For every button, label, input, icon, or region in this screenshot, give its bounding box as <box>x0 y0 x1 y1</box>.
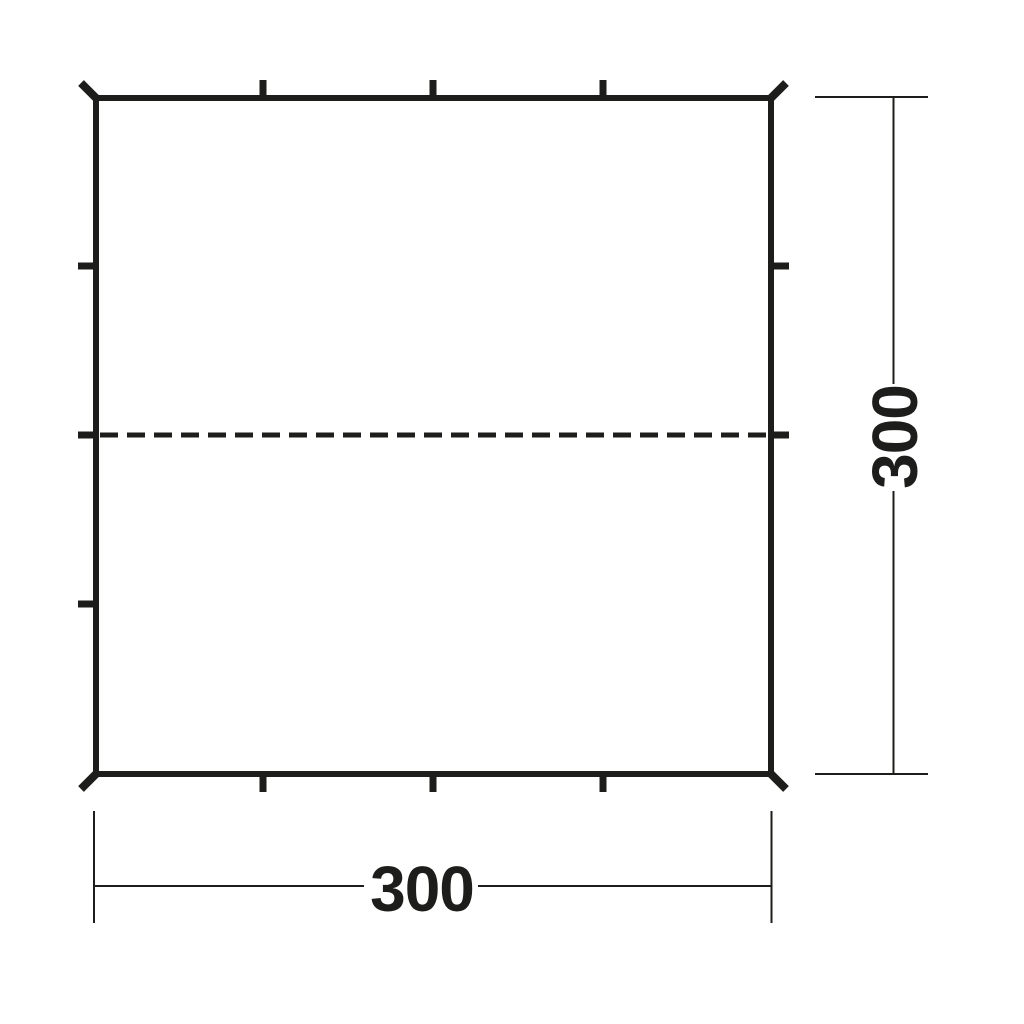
height-dimension-label: 300 <box>859 385 931 489</box>
drawing-lines <box>78 80 928 923</box>
drawing-svg: 300 300 <box>0 0 1024 1024</box>
width-dimension-label: 300 <box>370 853 474 925</box>
corner-tick-bottom-right <box>771 774 786 789</box>
corner-tick-bottom-left <box>81 774 96 789</box>
corner-tick-top-left <box>81 83 96 98</box>
corner-tick-top-right <box>771 83 786 98</box>
tarp-dimension-drawing: 300 300 <box>0 0 1024 1024</box>
